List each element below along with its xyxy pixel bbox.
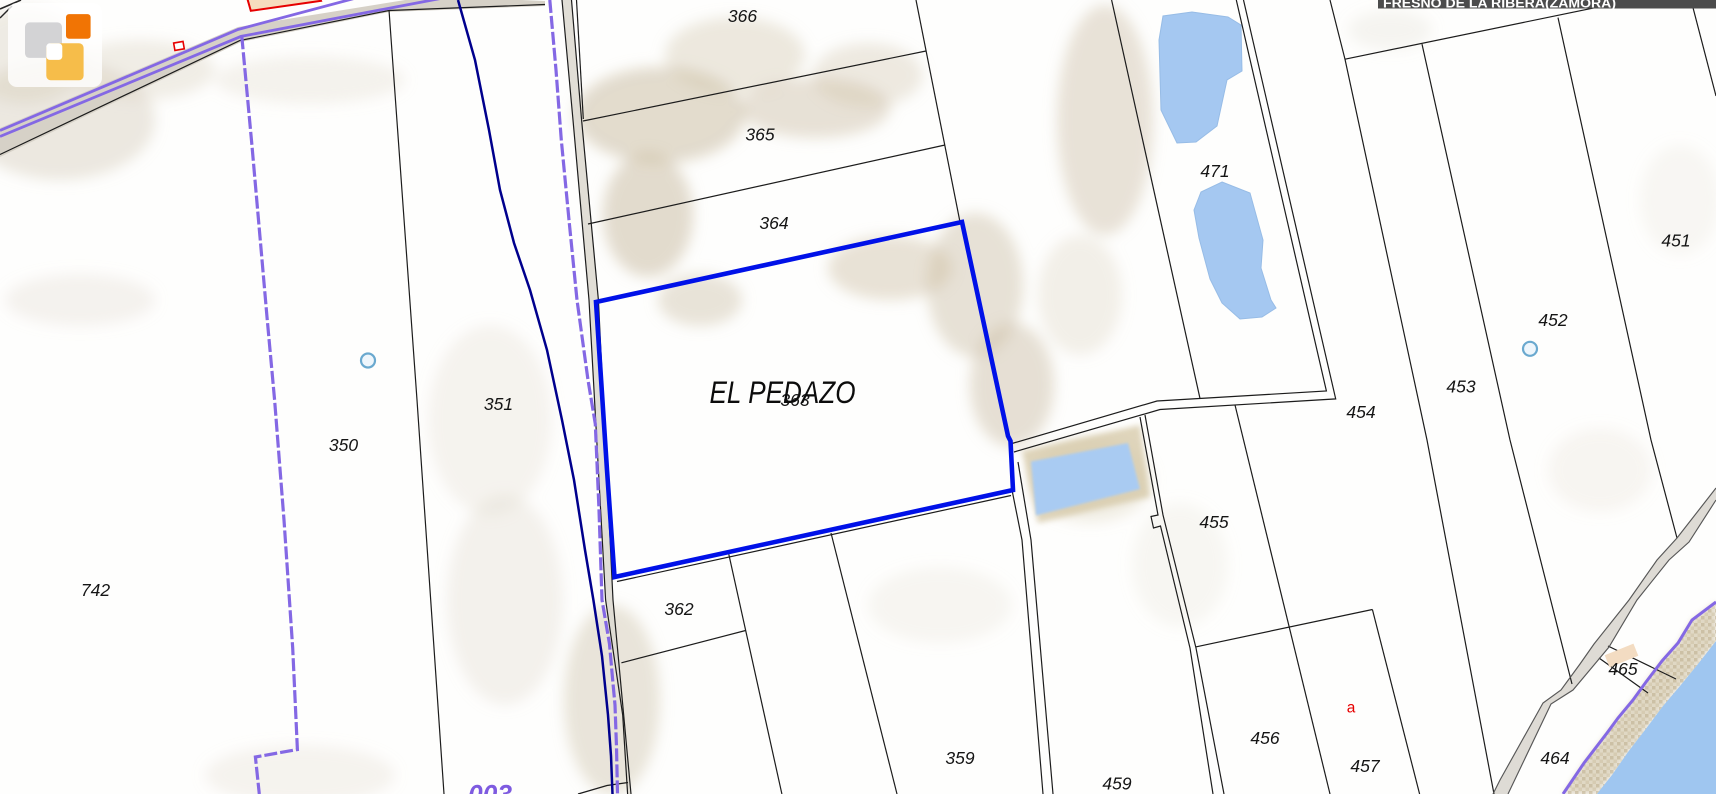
svg-text:455: 455 xyxy=(1199,512,1228,532)
svg-text:366: 366 xyxy=(728,6,757,26)
svg-text:EL PEDAZO: EL PEDAZO xyxy=(710,374,856,410)
svg-text:464: 464 xyxy=(1540,748,1569,768)
svg-text:365: 365 xyxy=(745,125,774,145)
svg-text:452: 452 xyxy=(1538,310,1567,330)
svg-text:459: 459 xyxy=(1102,774,1131,794)
svg-text:003: 003 xyxy=(468,779,512,794)
svg-text:453: 453 xyxy=(1446,377,1475,397)
svg-text:465: 465 xyxy=(1608,659,1637,679)
svg-text:454: 454 xyxy=(1346,402,1375,422)
svg-text:451: 451 xyxy=(1661,231,1690,251)
svg-text:457: 457 xyxy=(1350,756,1380,776)
svg-text:364: 364 xyxy=(759,213,788,233)
svg-text:350: 350 xyxy=(329,435,358,455)
svg-text:742: 742 xyxy=(81,580,110,600)
svg-text:362: 362 xyxy=(664,599,693,619)
svg-text:456: 456 xyxy=(1250,728,1279,748)
svg-text:a: a xyxy=(1347,700,1356,717)
svg-text:359: 359 xyxy=(945,748,974,768)
svg-text:471: 471 xyxy=(1200,161,1229,181)
svg-text:FRESNO DE LA RIBERA(ZAMORA): FRESNO DE LA RIBERA(ZAMORA) xyxy=(1383,0,1616,11)
svg-text:351: 351 xyxy=(484,394,513,414)
